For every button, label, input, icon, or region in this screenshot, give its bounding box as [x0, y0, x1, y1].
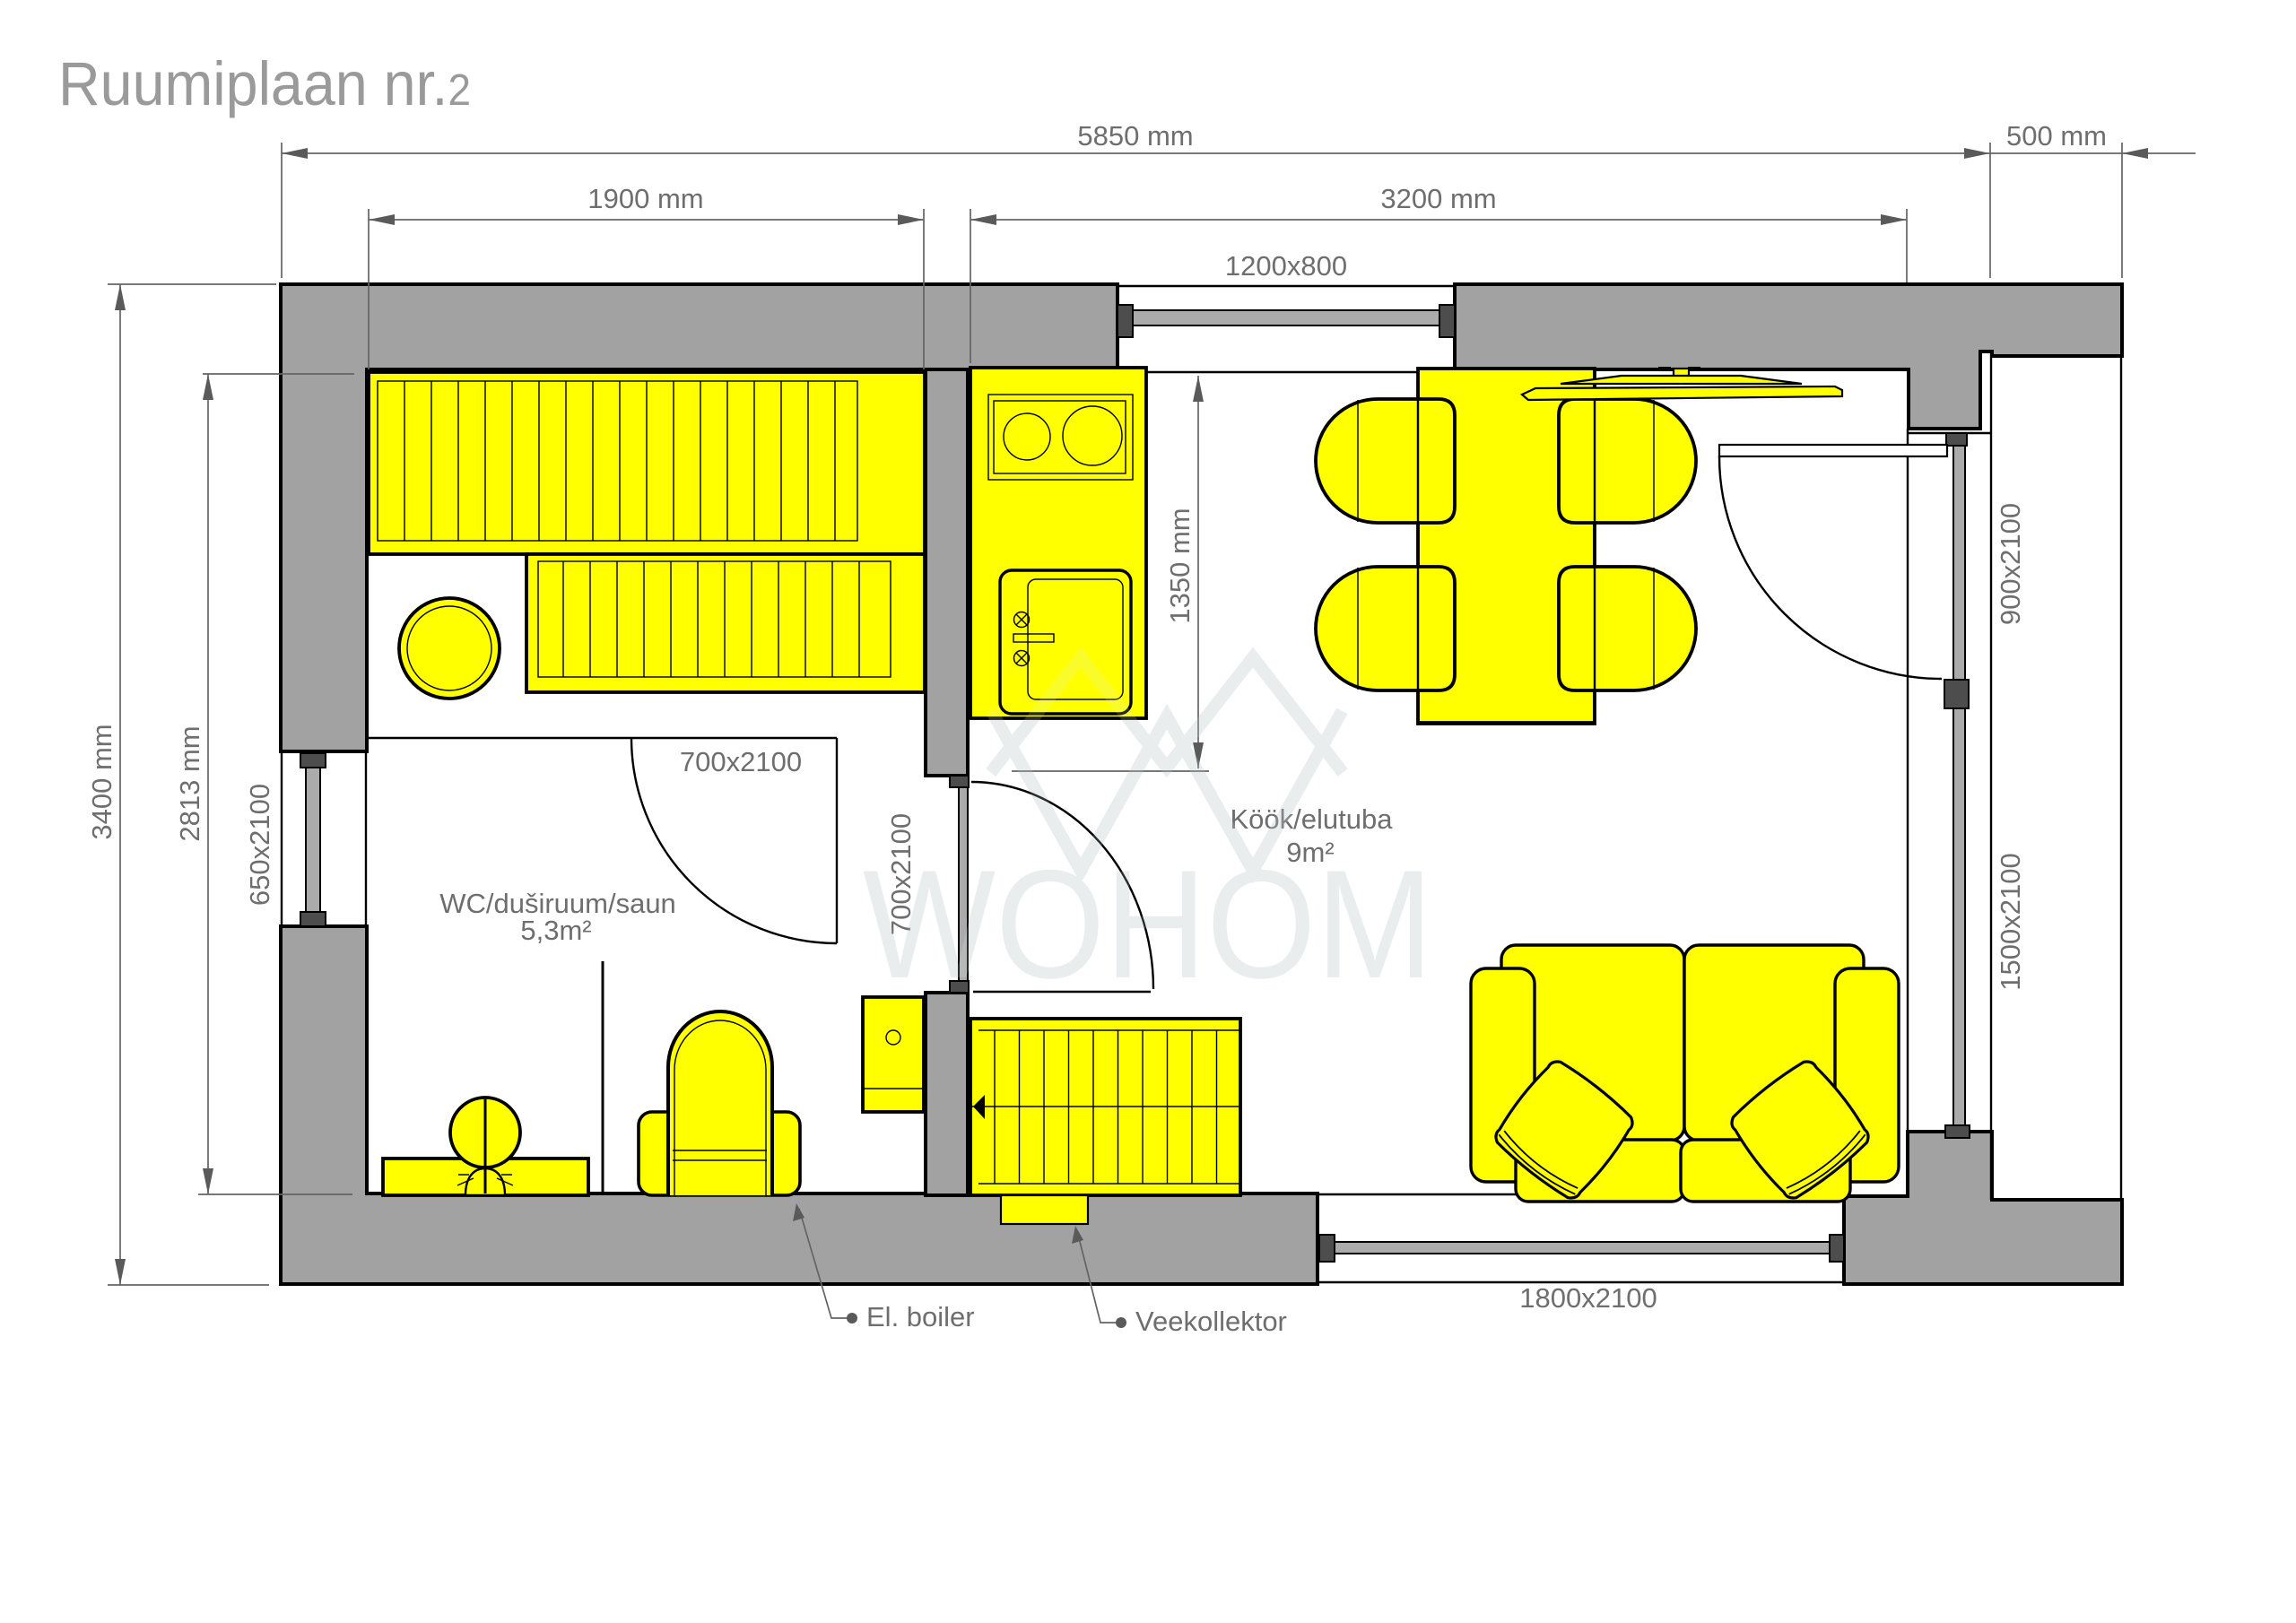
- svg-text:2813 mm: 2813 mm: [174, 725, 205, 841]
- svg-text:700x2100: 700x2100: [680, 746, 802, 777]
- svg-text:3400 mm: 3400 mm: [86, 724, 117, 839]
- svg-text:1200x800: 1200x800: [1225, 250, 1347, 282]
- svg-text:Köök/elutuba: Köök/elutuba: [1231, 803, 1394, 835]
- svg-text:Ruumiplaan nr.2: Ruumiplaan nr.2: [58, 49, 471, 118]
- svg-text:1900 mm: 1900 mm: [587, 183, 703, 214]
- svg-text:Veekollektor: Veekollektor: [1135, 1306, 1287, 1337]
- svg-text:5850 mm: 5850 mm: [1077, 120, 1193, 152]
- svg-text:3200 mm: 3200 mm: [1380, 183, 1496, 214]
- svg-text:500 mm: 500 mm: [2006, 120, 2107, 152]
- svg-text:1800x2100: 1800x2100: [1519, 1282, 1657, 1314]
- svg-text:1350 mm: 1350 mm: [1164, 508, 1196, 623]
- svg-text:El. boiler: El. boiler: [866, 1301, 975, 1332]
- svg-text:650x2100: 650x2100: [244, 784, 275, 906]
- svg-text:5,3m²: 5,3m²: [520, 915, 591, 946]
- svg-text:900x2100: 900x2100: [1995, 503, 2026, 625]
- svg-text:1500x2100: 1500x2100: [1995, 853, 2026, 990]
